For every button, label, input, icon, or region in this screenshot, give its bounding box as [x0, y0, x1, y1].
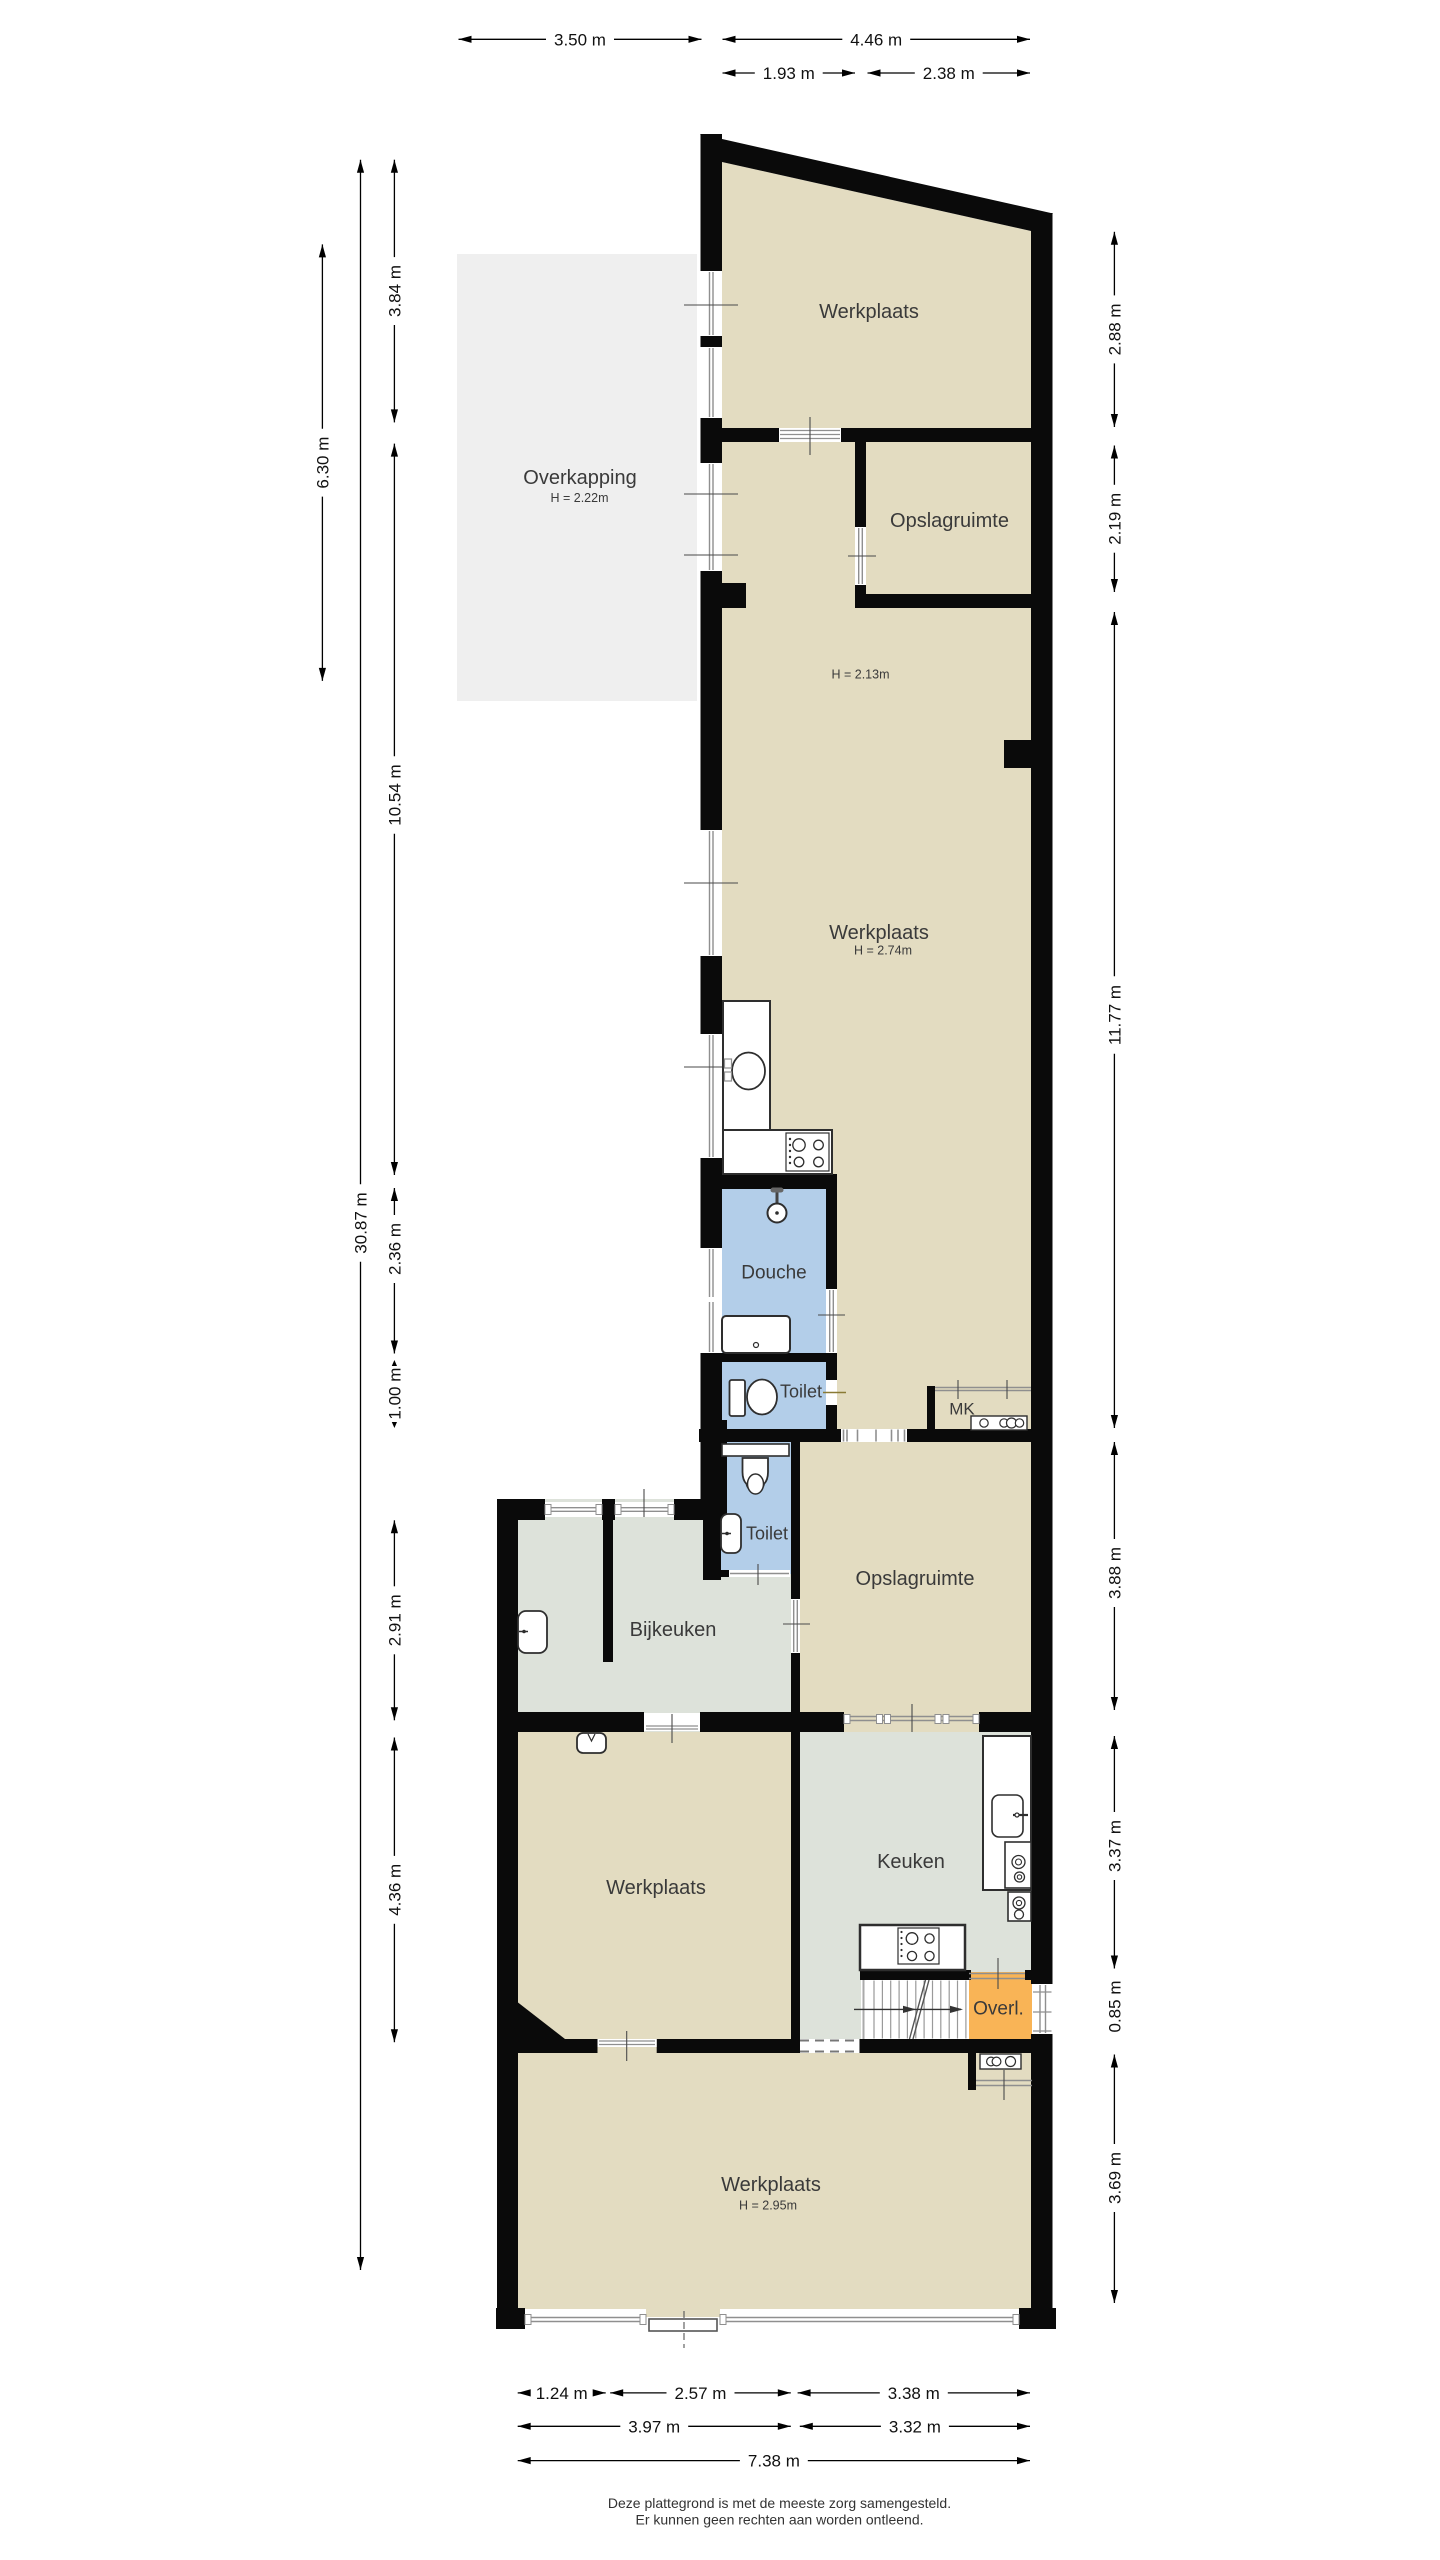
svg-text:6.30 m: 6.30 m [313, 437, 332, 489]
svg-text:Bijkeuken: Bijkeuken [630, 1619, 717, 1641]
svg-text:3.97 m: 3.97 m [628, 2417, 680, 2436]
svg-text:Douche: Douche [741, 1263, 807, 1284]
svg-text:2.91 m: 2.91 m [385, 1594, 404, 1646]
svg-text:H = 2.22m: H = 2.22m [550, 491, 608, 505]
svg-text:2.19 m: 2.19 m [1105, 493, 1124, 545]
svg-text:H = 2.95m: H = 2.95m [739, 2199, 797, 2213]
svg-text:3.88 m: 3.88 m [1105, 1547, 1124, 1599]
svg-text:11.77 m: 11.77 m [1105, 985, 1124, 1045]
svg-text:Werkplaats: Werkplaats [829, 922, 929, 944]
svg-text:2.38 m: 2.38 m [923, 64, 975, 83]
svg-text:4.46 m: 4.46 m [850, 30, 902, 49]
svg-text:Keuken: Keuken [877, 1851, 945, 1873]
svg-text:Er kunnen geen rechten aan wor: Er kunnen geen rechten aan worden ontlee… [636, 2512, 924, 2528]
svg-text:Opslagruimte: Opslagruimte [856, 1568, 975, 1590]
svg-text:1.93 m: 1.93 m [763, 64, 815, 83]
svg-text:3.38 m: 3.38 m [888, 2384, 940, 2403]
svg-text:Toilet: Toilet [780, 1382, 822, 1402]
svg-text:2.88 m: 2.88 m [1105, 303, 1124, 355]
svg-text:3.32 m: 3.32 m [889, 2417, 941, 2436]
svg-text:3.84 m: 3.84 m [385, 265, 404, 317]
svg-text:1.00 m: 1.00 m [385, 1368, 404, 1420]
svg-text:3.50 m: 3.50 m [554, 30, 606, 49]
svg-text:Toilet: Toilet [746, 1524, 788, 1544]
svg-text:Overl.: Overl. [973, 1999, 1024, 2020]
svg-text:10.54 m: 10.54 m [385, 764, 404, 825]
svg-text:0.85 m: 0.85 m [1105, 1981, 1124, 2033]
svg-text:4.36 m: 4.36 m [385, 1864, 404, 1916]
svg-text:3.37 m: 3.37 m [1105, 1820, 1124, 1872]
svg-text:H = 2.74m: H = 2.74m [854, 944, 912, 958]
svg-text:H = 2.13m: H = 2.13m [831, 668, 889, 682]
svg-text:Werkplaats: Werkplaats [721, 2174, 821, 2196]
svg-text:Werkplaats: Werkplaats [819, 301, 919, 323]
svg-text:30.87 m: 30.87 m [352, 1192, 371, 1253]
svg-text:7.38 m: 7.38 m [748, 2452, 800, 2471]
svg-text:Opslagruimte: Opslagruimte [890, 510, 1009, 532]
svg-text:Werkplaats: Werkplaats [606, 1877, 706, 1899]
svg-text:1.24 m: 1.24 m [536, 2384, 588, 2403]
svg-text:2.57 m: 2.57 m [675, 2384, 727, 2403]
svg-text:3.69 m: 3.69 m [1105, 2152, 1124, 2204]
svg-text:Deze plattegrond is met de mee: Deze plattegrond is met de meeste zorg s… [608, 2495, 951, 2511]
svg-text:MK: MK [949, 1400, 975, 1419]
svg-text:2.36 m: 2.36 m [385, 1223, 404, 1275]
svg-text:Overkapping: Overkapping [523, 467, 636, 489]
